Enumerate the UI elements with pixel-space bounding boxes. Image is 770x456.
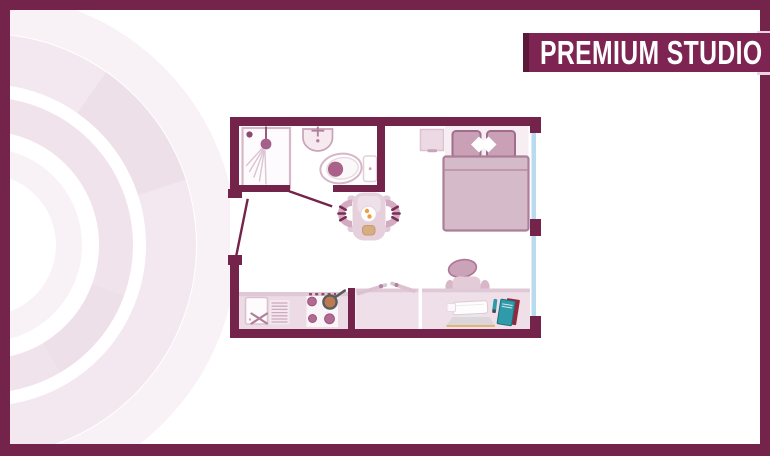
wall-left-lower <box>230 257 239 338</box>
wall-left-upper <box>230 117 239 198</box>
kitchen-divider-wall <box>348 288 355 329</box>
burner <box>309 315 317 323</box>
floor-plan <box>228 117 541 338</box>
desk-edge <box>422 289 530 293</box>
laptop-lid <box>453 301 488 315</box>
duvet <box>444 157 529 231</box>
food-dot <box>367 214 371 218</box>
bed <box>444 131 529 231</box>
burner <box>308 297 317 306</box>
nightstand-handle <box>428 149 438 152</box>
nightstand <box>421 130 444 153</box>
flap-knob <box>394 283 398 287</box>
bread <box>363 226 376 236</box>
notepad <box>447 304 456 312</box>
drainer-ribs <box>272 303 288 322</box>
burner <box>325 314 335 324</box>
wall-bottom <box>230 329 541 338</box>
banner-fold <box>523 33 529 72</box>
bathroom-wall-vertical <box>377 126 385 192</box>
storage-cabinet <box>356 283 419 329</box>
sink-drain <box>249 318 251 320</box>
wall-right-bottom <box>530 316 541 338</box>
shower-drain <box>246 131 252 137</box>
pan-body <box>323 295 336 308</box>
premium-studio-banner: PREMIUM STUDIO <box>523 33 770 72</box>
cistern-button <box>369 167 372 170</box>
flap-knob <box>379 284 383 288</box>
premium-studio-floorplan-card: PREMIUM STUDIO <box>0 0 770 456</box>
bathroom-wall-left <box>239 185 290 192</box>
sink-drain <box>316 139 319 142</box>
desk-pad <box>447 317 496 326</box>
nightstand-top <box>421 130 444 151</box>
bg-arc <box>0 161 69 329</box>
shower <box>243 127 291 189</box>
dining-table <box>353 193 386 241</box>
banner-title: PREMIUM STUDIO <box>540 34 763 72</box>
wall-right-top <box>530 117 541 133</box>
kitchen <box>239 291 348 329</box>
bathroom-wall-right <box>333 185 385 192</box>
pen-tip <box>492 309 496 313</box>
wall-right-mid <box>530 219 541 236</box>
cabinet-top <box>356 289 419 330</box>
food-dot <box>365 209 369 213</box>
bathroom-sink <box>303 127 333 152</box>
background-arcs <box>0 0 244 456</box>
shower-head-icon <box>261 139 272 150</box>
dish-drainer <box>270 300 290 325</box>
wall-top <box>230 117 541 126</box>
plate <box>361 206 377 222</box>
